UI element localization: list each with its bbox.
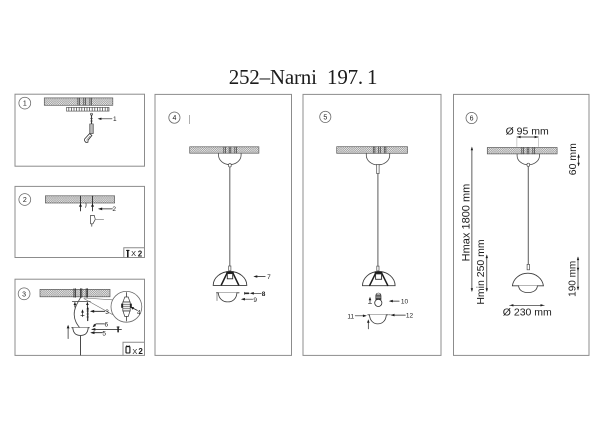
svg-text:3: 3 bbox=[105, 309, 109, 316]
svg-text:Hmin 250 mm: Hmin 250 mm bbox=[475, 239, 487, 305]
svg-text:7: 7 bbox=[267, 274, 271, 281]
svg-text:4: 4 bbox=[137, 309, 141, 316]
svg-text:10: 10 bbox=[401, 299, 409, 306]
svg-text:5: 5 bbox=[323, 114, 327, 121]
svg-text:X: X bbox=[131, 249, 136, 258]
svg-text:Hmax 1800 mm: Hmax 1800 mm bbox=[460, 184, 472, 262]
svg-text:9: 9 bbox=[253, 297, 257, 304]
svg-text:2: 2 bbox=[112, 206, 116, 213]
svg-text:60 mm: 60 mm bbox=[567, 143, 579, 175]
svg-text:8: 8 bbox=[262, 291, 266, 298]
svg-text:1: 1 bbox=[113, 116, 117, 123]
svg-text:6: 6 bbox=[470, 116, 474, 123]
svg-text:X: X bbox=[132, 347, 137, 356]
svg-text:12: 12 bbox=[406, 313, 414, 320]
svg-text:Ø 95 mm: Ø 95 mm bbox=[506, 125, 549, 137]
svg-text:2: 2 bbox=[23, 197, 27, 204]
svg-text:252–Narni 197. 1: 252–Narni 197. 1 bbox=[229, 65, 378, 89]
svg-text:4: 4 bbox=[172, 115, 176, 122]
svg-text:Ø 230 mm: Ø 230 mm bbox=[503, 306, 552, 318]
svg-text:190 mm: 190 mm bbox=[568, 261, 579, 297]
svg-text:1: 1 bbox=[23, 101, 27, 108]
svg-text:6: 6 bbox=[104, 321, 108, 328]
svg-text:11: 11 bbox=[347, 313, 354, 320]
svg-text:5: 5 bbox=[102, 330, 106, 337]
svg-text:2: 2 bbox=[138, 347, 143, 356]
svg-text:2: 2 bbox=[138, 250, 143, 259]
svg-text:3: 3 bbox=[22, 291, 26, 298]
